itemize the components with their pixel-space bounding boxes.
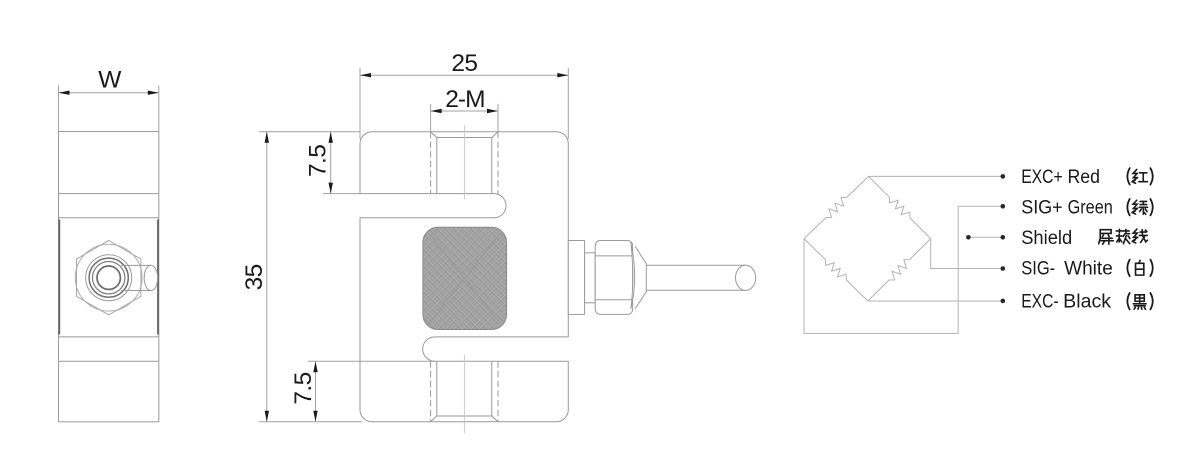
svg-text:Red: Red bbox=[1068, 167, 1101, 188]
svg-text:7.5: 7.5 bbox=[305, 145, 332, 177]
svg-text:25: 25 bbox=[451, 50, 477, 77]
svg-text:Shield: Shield bbox=[1021, 228, 1072, 249]
svg-text:7.5: 7.5 bbox=[290, 372, 317, 404]
svg-text:EXC-: EXC- bbox=[1021, 292, 1058, 313]
svg-text:White: White bbox=[1064, 258, 1113, 279]
svg-text:EXC+: EXC+ bbox=[1021, 167, 1062, 188]
svg-text:Green: Green bbox=[1068, 198, 1113, 219]
svg-text:W: W bbox=[98, 67, 122, 94]
svg-text:2-M: 2-M bbox=[445, 86, 484, 113]
svg-text:35: 35 bbox=[241, 264, 268, 290]
svg-text:SIG+: SIG+ bbox=[1021, 198, 1062, 219]
svg-text:Black: Black bbox=[1063, 292, 1111, 313]
svg-text:SIG-: SIG- bbox=[1021, 258, 1055, 279]
